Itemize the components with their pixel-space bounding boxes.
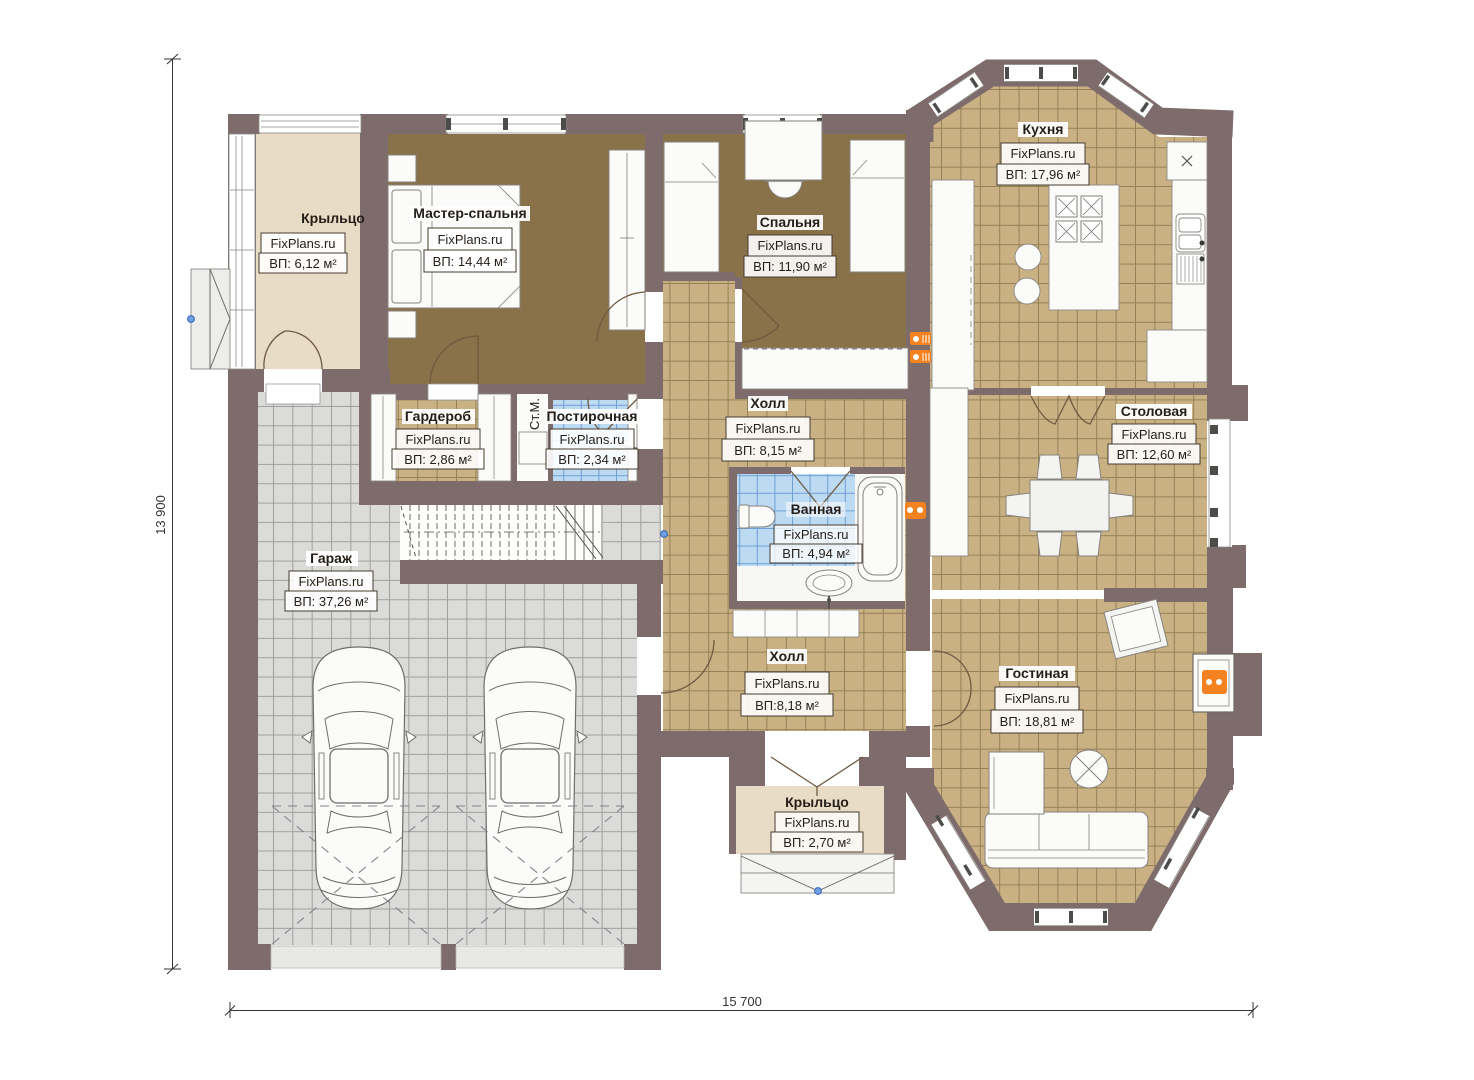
svg-text:FixPlans.ru: FixPlans.ru xyxy=(1121,427,1186,442)
svg-text:Ванная: Ванная xyxy=(791,501,842,517)
svg-text:15 700: 15 700 xyxy=(722,994,762,1009)
svg-text:FixPlans.ru: FixPlans.ru xyxy=(754,676,819,691)
svg-text:FixPlans.ru: FixPlans.ru xyxy=(405,432,470,447)
svg-text:FixPlans.ru: FixPlans.ru xyxy=(757,238,822,253)
svg-text:Постирочная: Постирочная xyxy=(547,408,638,424)
svg-text:FixPlans.ru: FixPlans.ru xyxy=(559,432,624,447)
svg-text:Гараж: Гараж xyxy=(310,550,353,566)
svg-text:FixPlans.ru: FixPlans.ru xyxy=(784,815,849,830)
svg-text:ВП: 14,44 м²: ВП: 14,44 м² xyxy=(433,254,508,269)
svg-text:FixPlans.ru: FixPlans.ru xyxy=(298,574,363,589)
svg-text:Холл: Холл xyxy=(750,395,785,411)
svg-text:ВП: 2,86 м²: ВП: 2,86 м² xyxy=(404,452,472,467)
svg-text:ВП: 11,90 м²: ВП: 11,90 м² xyxy=(753,259,827,274)
svg-text:Крыльцо: Крыльцо xyxy=(785,794,849,810)
svg-text:FixPlans.ru: FixPlans.ru xyxy=(270,236,335,251)
svg-text:13 900: 13 900 xyxy=(153,495,168,535)
svg-text:FixPlans.ru: FixPlans.ru xyxy=(735,421,800,436)
svg-text:FixPlans.ru: FixPlans.ru xyxy=(437,232,502,247)
svg-text:ВП: 37,26 м²: ВП: 37,26 м² xyxy=(294,594,369,609)
svg-text:ВП: 6,12 м²: ВП: 6,12 м² xyxy=(269,256,337,271)
svg-text:Кухня: Кухня xyxy=(1023,121,1064,137)
svg-text:FixPlans.ru: FixPlans.ru xyxy=(1004,691,1069,706)
svg-text:Холл: Холл xyxy=(769,648,804,664)
svg-text:FixPlans.ru: FixPlans.ru xyxy=(783,527,848,542)
svg-text:Крыльцо: Крыльцо xyxy=(301,210,365,226)
svg-text:Мастер-спальня: Мастер-спальня xyxy=(413,205,526,221)
svg-text:ВП: 2,34 м²: ВП: 2,34 м² xyxy=(558,452,626,467)
svg-text:ВП: 8,15 м²: ВП: 8,15 м² xyxy=(734,443,802,458)
svg-text:ВП: 4,94 м²: ВП: 4,94 м² xyxy=(782,546,850,561)
svg-text:Спальня: Спальня xyxy=(760,214,820,230)
svg-text:ВП: 18,81 м²: ВП: 18,81 м² xyxy=(1000,714,1075,729)
svg-text:ВП: 17,96 м²: ВП: 17,96 м² xyxy=(1006,167,1081,182)
svg-text:ВП: 2,70 м²: ВП: 2,70 м² xyxy=(783,835,851,850)
svg-text:Гостиная: Гостиная xyxy=(1005,665,1068,681)
svg-text:ВП: 12,60 м²: ВП: 12,60 м² xyxy=(1117,447,1192,462)
svg-text:ВП:8,18 м²: ВП:8,18 м² xyxy=(755,698,819,713)
svg-text:FixPlans.ru: FixPlans.ru xyxy=(1010,146,1075,161)
svg-text:Столовая: Столовая xyxy=(1121,403,1188,419)
svg-text:Ст.М.: Ст.М. xyxy=(527,398,542,430)
svg-text:Гардероб: Гардероб xyxy=(405,408,472,424)
